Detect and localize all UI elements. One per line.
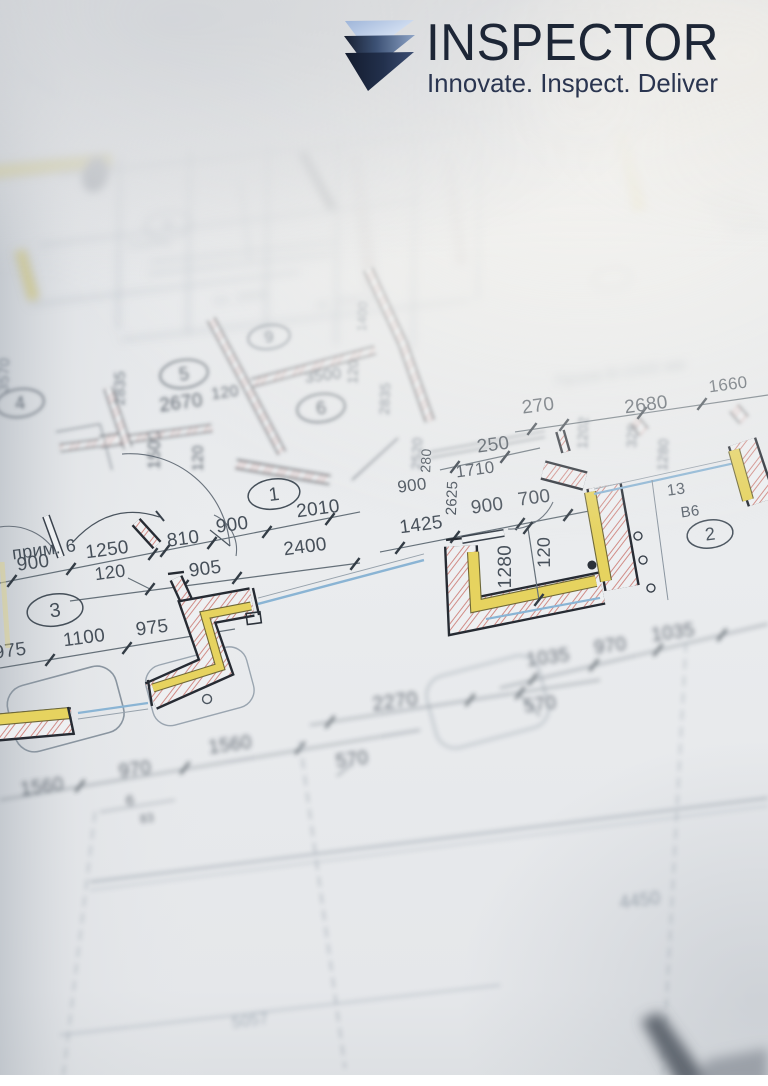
svg-text:970: 970 [593, 634, 628, 659]
svg-text:570: 570 [523, 693, 558, 718]
svg-text:970: 970 [118, 758, 153, 783]
svg-text:975: 975 [0, 639, 28, 664]
svg-text:83: 83 [139, 810, 155, 826]
svg-text:570: 570 [335, 748, 370, 773]
svg-text:INSPECTOR: INSPECTOR [426, 14, 719, 72]
svg-text:975: 975 [135, 616, 170, 641]
svg-text:Innovate. Inspect. Deliver: Innovate. Inspect. Deliver [427, 68, 718, 98]
